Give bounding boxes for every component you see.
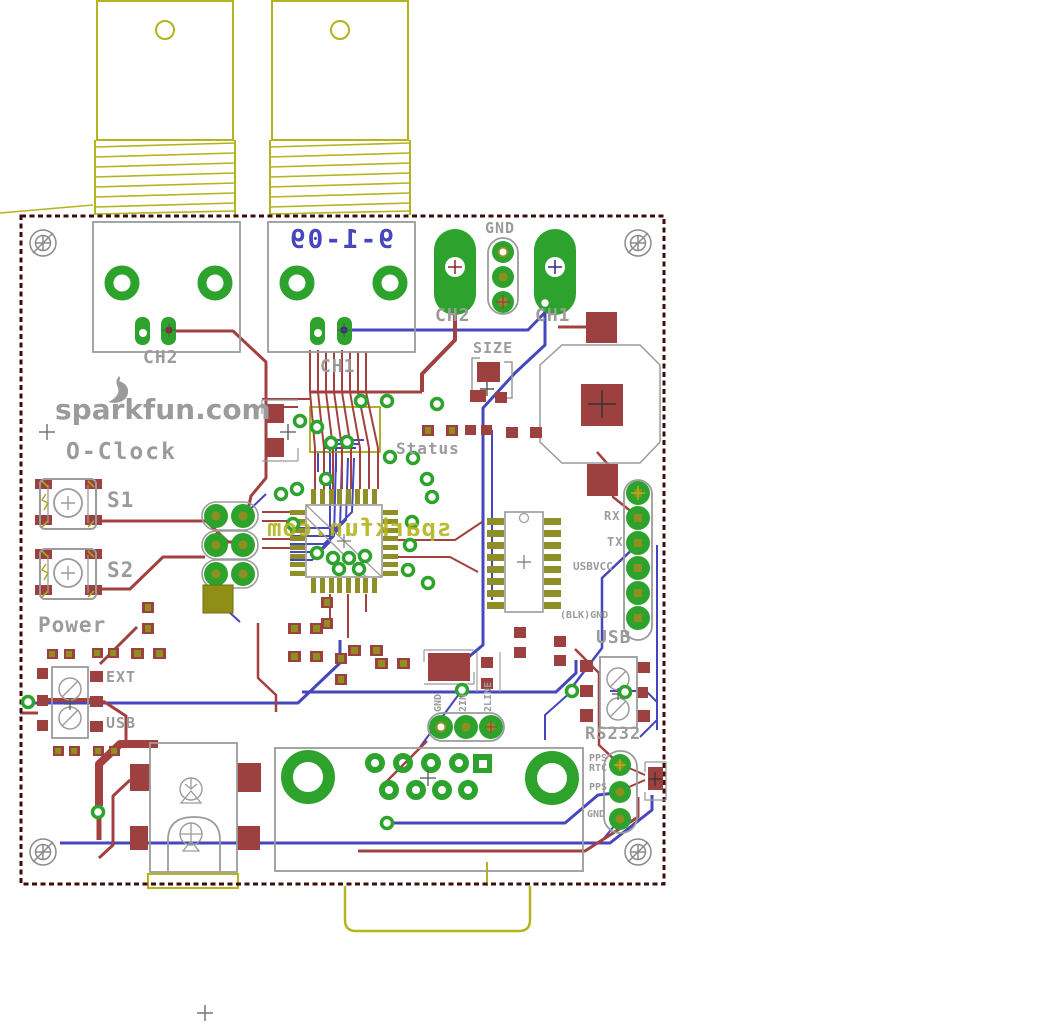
mounting-hole [30, 230, 56, 256]
usb-rs232-switch[interactable] [580, 657, 650, 728]
label-usbvcc: USBVCC [573, 561, 613, 572]
top-left-yellow-line [0, 205, 93, 213]
label-s2: S2 [107, 560, 134, 581]
label-blk-gnd: (BLK)GND [560, 611, 608, 621]
label-pad-ch1: CH1 [535, 307, 571, 325]
button-s1[interactable] [35, 479, 102, 529]
label-power: Power [38, 615, 106, 636]
barrel-jack-shell-outline [148, 874, 238, 888]
label-gnd-rs232: GND [587, 810, 605, 820]
label-pps2: PPS [589, 783, 607, 793]
mounting-hole [30, 839, 56, 865]
pcb-layout-canvas: GND 9-1-09 CH2 CH1 CH2 CH1 SIZE sparkfun… [0, 0, 1063, 1024]
label-date-mirrored: 9-1-09 [288, 227, 394, 253]
label-usb-right: USB [596, 629, 632, 647]
barrel-jack[interactable] [130, 743, 261, 872]
serial-header[interactable] [624, 480, 652, 640]
size-component[interactable] [470, 358, 512, 403]
label-2in: 2IN [459, 694, 469, 712]
bnc-connector-shell-ch2[interactable] [95, 1, 235, 215]
label-tx: TX [607, 536, 623, 548]
gnd-header-top[interactable] [488, 238, 518, 314]
label-rtc: RTC [589, 764, 607, 774]
label-product-oclock: O-Clock [66, 441, 177, 464]
label-bnc-ch2: CH2 [143, 349, 179, 367]
label-usb-power: USB [106, 716, 136, 731]
label-sparkfun-brand: sparkfun.com [55, 396, 271, 424]
label-bottom-brand-mirrored: sparkfun.com [266, 516, 451, 540]
label-rs232: RS232 [585, 726, 641, 743]
label-2line: 2LINE [484, 682, 494, 712]
label-pad-ch2: CH2 [435, 307, 471, 325]
power-switch[interactable] [37, 667, 103, 738]
signal-header-bottom[interactable] [428, 713, 504, 741]
label-s1: S1 [107, 490, 134, 511]
bnc-connector-shell-ch1[interactable] [270, 1, 410, 215]
button-s2[interactable] [35, 549, 102, 599]
label-gnd-top: GND [485, 221, 515, 236]
label-status: Status [396, 441, 460, 457]
octagon-component[interactable] [540, 312, 660, 496]
label-rx: RX [604, 510, 620, 522]
mounting-hole [625, 230, 651, 256]
ch2-test-pad[interactable] [434, 229, 476, 315]
label-bnc-ch1: CH1 [320, 358, 356, 376]
pcb-graphics [0, 0, 1063, 1024]
isp-header[interactable] [202, 502, 258, 588]
db9-shell-outline [345, 862, 530, 931]
interface-ic-soic[interactable] [487, 512, 561, 612]
label-size: SIZE [473, 341, 513, 356]
label-gnd-bottom: GND [434, 694, 444, 712]
label-ext: EXT [106, 670, 136, 685]
db9-connector[interactable] [275, 748, 583, 871]
mounting-hole [625, 839, 651, 865]
